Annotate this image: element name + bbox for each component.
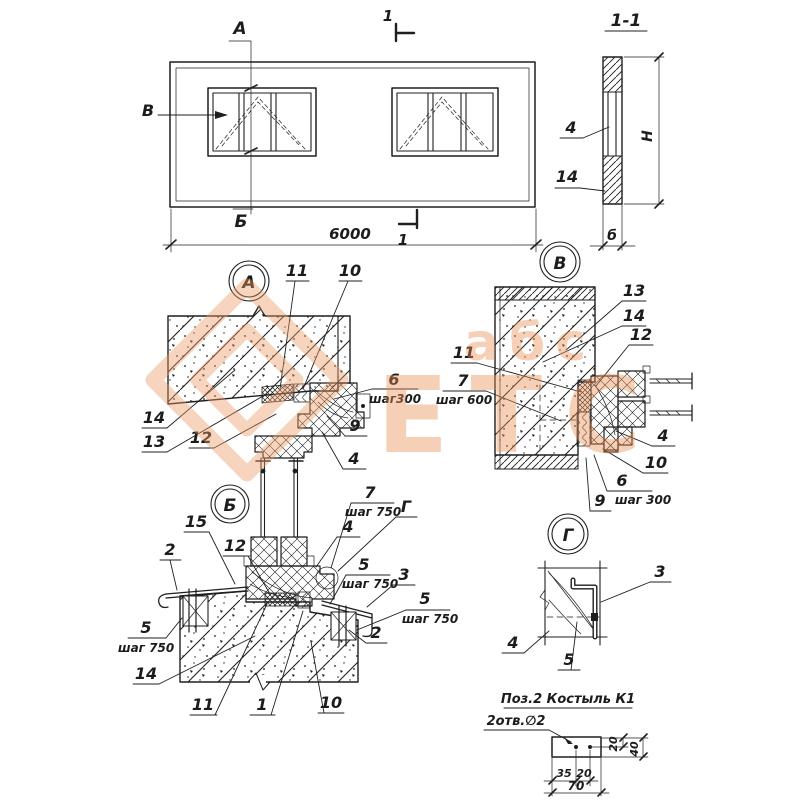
marker-v-label: В bbox=[554, 254, 567, 274]
dim-b: б bbox=[607, 228, 617, 244]
cut-mark-top: 1 bbox=[383, 7, 414, 41]
dim-20-top: 20 bbox=[607, 736, 620, 752]
section-line-a-b bbox=[229, 41, 251, 214]
callout-4: 4 bbox=[341, 517, 353, 536]
dim-40: 40 bbox=[628, 741, 641, 758]
callout-12: 12 bbox=[630, 325, 652, 344]
cut-label-1: 1 bbox=[383, 7, 393, 25]
hole-1 bbox=[574, 745, 578, 749]
window-2 bbox=[392, 88, 498, 156]
screw-icon bbox=[361, 404, 365, 408]
callout-14: 14 bbox=[556, 167, 578, 186]
arrowhead-icon bbox=[215, 111, 228, 119]
callout-10: 10 bbox=[339, 261, 361, 280]
callout-9: 9 bbox=[594, 491, 605, 510]
callout-13: 13 bbox=[623, 281, 645, 300]
callout-5-mid-note: шаг 750 bbox=[342, 577, 398, 591]
callout-4: 4 bbox=[347, 449, 359, 468]
detail-g: Г 3 4 5 bbox=[502, 514, 671, 670]
plan-view: А Б В 1 1 6000 bbox=[142, 7, 543, 252]
callout-4: 4 bbox=[564, 118, 576, 137]
dim-70: 70 bbox=[568, 779, 585, 793]
left-anchor bbox=[183, 589, 208, 632]
callout-14: 14 bbox=[143, 408, 165, 427]
panel-web bbox=[608, 92, 616, 156]
callout-11: 11 bbox=[286, 261, 308, 280]
callout-4: 4 bbox=[506, 633, 518, 652]
drawing-sheet: А Б В 1 1 6000 1-1 б Н 4 14 А bbox=[0, 0, 800, 800]
callout-5-mid: 5 bbox=[358, 555, 369, 574]
sash-bottom-2 bbox=[281, 537, 307, 566]
pos2-detail: Поз.2 Костыль К1 2отв.∅2 20 40 35 20 70 bbox=[484, 692, 648, 796]
callout-14: 14 bbox=[623, 306, 645, 325]
dim-h: Н bbox=[640, 130, 656, 142]
panel-outline bbox=[170, 62, 535, 207]
arrowhead-icon bbox=[564, 737, 573, 744]
glazing-lines bbox=[256, 458, 303, 537]
callout-5-left: 5 bbox=[140, 618, 151, 637]
callout-13: 13 bbox=[143, 432, 165, 451]
right-anchor bbox=[331, 606, 356, 646]
cut-label-1b: 1 bbox=[398, 231, 408, 249]
callout-3: 3 bbox=[654, 562, 665, 581]
plan-dimension: 6000 bbox=[163, 209, 543, 252]
construction-drawing: А Б В 1 1 6000 1-1 б Н 4 14 А bbox=[0, 0, 800, 800]
pos2-title: Поз.2 Костыль К1 bbox=[501, 692, 635, 707]
section-title: 1-1 bbox=[611, 11, 642, 31]
cut-mark-bottom: 1 bbox=[398, 210, 417, 249]
dim-6000: 6000 bbox=[329, 225, 371, 243]
opening-direction-dashed bbox=[400, 97, 488, 149]
callout-7: 7 bbox=[364, 483, 376, 502]
detail-b: Б 15 12 2 7 bbox=[118, 483, 458, 715]
pos2-dimensions: 20 40 35 20 70 bbox=[544, 734, 648, 796]
callout-g: Г bbox=[401, 497, 412, 516]
callout-5-right: 5 bbox=[419, 589, 430, 608]
callout-1: 1 bbox=[256, 695, 267, 714]
callout-3: 3 bbox=[398, 565, 409, 584]
marker-b-label: Б bbox=[224, 496, 237, 516]
callout-2-right: 2 bbox=[370, 623, 381, 642]
callout-5-right-note: шаг 750 bbox=[402, 612, 458, 626]
window-1 bbox=[208, 88, 316, 156]
watermark-big-text: ЕТС bbox=[377, 355, 663, 477]
callout-12: 12 bbox=[224, 536, 246, 555]
plan-mark-a: А bbox=[231, 19, 246, 39]
pos2-note: 2отв.∅2 bbox=[487, 714, 546, 729]
top-hatched-block bbox=[603, 57, 622, 92]
callout-15: 15 bbox=[185, 512, 207, 531]
bracket-k1 bbox=[547, 580, 599, 637]
callout-11: 11 bbox=[192, 695, 214, 714]
callout-2-left: 2 bbox=[164, 540, 175, 559]
hole-2 bbox=[588, 745, 592, 749]
section-1-1: 1-1 б Н 4 14 bbox=[555, 11, 664, 250]
callout-5-left-note: шаг 750 bbox=[118, 641, 174, 655]
callout-14: 14 bbox=[135, 664, 157, 683]
plan-mark-b: Б bbox=[235, 212, 248, 232]
marker-g-label: Г bbox=[563, 526, 575, 546]
callout-9: 9 bbox=[349, 416, 360, 435]
bottom-hatched-block bbox=[603, 156, 622, 204]
plan-mark-v: В bbox=[142, 101, 154, 120]
callout-6-note: шаг 300 bbox=[615, 493, 671, 507]
opening-direction-dashed bbox=[216, 97, 305, 149]
sash-bottom-1 bbox=[251, 537, 277, 566]
